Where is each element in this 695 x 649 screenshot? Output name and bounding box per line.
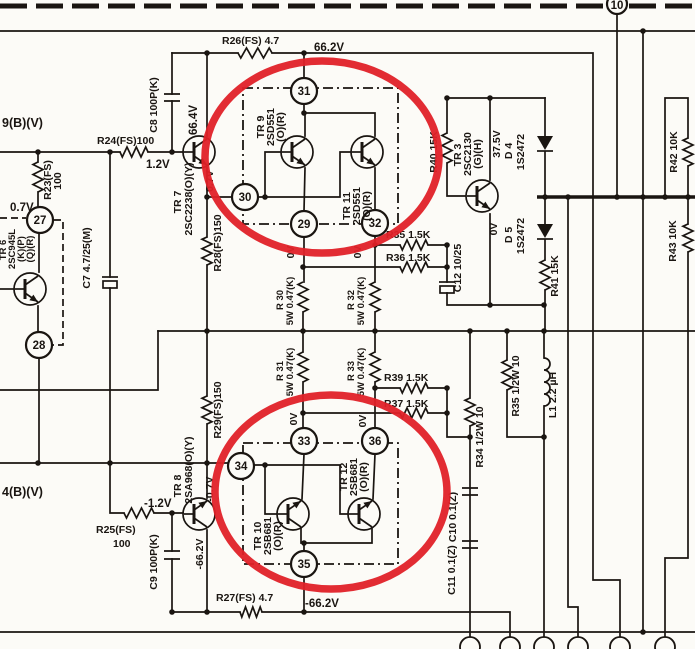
label-l1: L1 2.2 µH xyxy=(547,372,559,418)
terminal-2 xyxy=(500,637,520,649)
pin-label-34: 34 xyxy=(235,461,248,473)
diode-d5 xyxy=(537,224,553,239)
label-d4-b: 1S2472 xyxy=(515,134,527,170)
label-vm12: -1.2V xyxy=(144,498,172,510)
label-tr11-c: (O)(R) xyxy=(361,191,373,221)
label-vm662-bot: -66.2V xyxy=(305,598,339,610)
label-tr12-c: (O)(R) xyxy=(358,462,370,492)
pin-label-31: 31 xyxy=(298,86,311,98)
label-tr8-b: 2SA968(O)(Y) xyxy=(183,436,195,503)
label-r25-a: R25(FS) xyxy=(96,524,136,536)
label-d5-a: D 5 xyxy=(503,227,515,244)
label-r39: R39 1.5K xyxy=(384,372,429,384)
terminal-5 xyxy=(610,637,630,649)
label-r35b: R35 1/2W 10 xyxy=(510,355,522,416)
labels: 9(B)(V) 4(B)(V) 0.7V R24(FS)100 1.2V R26… xyxy=(0,0,680,610)
transistor-tr12 xyxy=(348,498,380,530)
pin-label-30: 30 xyxy=(239,192,252,204)
label-r36: R36 1.5K xyxy=(386,252,431,264)
label-v0-p36: 0V xyxy=(357,415,369,428)
label-r33-b: 5W 0.47(K) xyxy=(356,348,367,397)
label-v662: 66.2V xyxy=(314,42,344,54)
label-r28: R28(FS)150 xyxy=(212,214,224,271)
label-c8: C8 100P(K) xyxy=(148,77,160,132)
label-r27: R27(FS) 4.7 xyxy=(216,592,273,604)
schematic-canvas: 9(B)(V) 4(B)(V) 0.7V R24(FS)100 1.2V R26… xyxy=(0,0,695,649)
label-d4-a: D 4 xyxy=(503,143,515,160)
label-r29: R29(FS)150 xyxy=(212,381,224,438)
bottom-terminals xyxy=(460,637,675,649)
wire-segments xyxy=(0,14,695,637)
label-tr6-d: (Q)(R) xyxy=(25,236,36,263)
label-v375: 37.5V xyxy=(491,130,503,157)
pin-label-35: 35 xyxy=(298,559,311,571)
label-d5-b: 1S2472 xyxy=(515,218,527,254)
pin-label-33: 33 xyxy=(298,436,311,448)
terminal-3 xyxy=(534,637,554,649)
label-r26: R26(FS) 4.7 xyxy=(222,35,279,47)
label-v07-left: 0.7V xyxy=(10,202,34,214)
pin-label-28: 28 xyxy=(33,340,46,352)
terminal-6 xyxy=(655,637,675,649)
pin-label-36: 36 xyxy=(369,436,382,448)
schematic-page: 9(B)(V) 4(B)(V) 0.7V R24(FS)100 1.2V R26… xyxy=(0,0,695,649)
label-tr3-c: (G)(H) xyxy=(472,139,484,169)
label-r41: R41 15K xyxy=(549,255,561,297)
label-r25-b: 100 xyxy=(113,538,131,550)
transistor-tr3 xyxy=(466,180,498,212)
label-v12: 1.2V xyxy=(146,159,170,171)
label-c7: C7 4.7/25(M) xyxy=(81,227,93,288)
label-tr9-c: (O)(R) xyxy=(275,112,287,142)
label-c9: C9 100P(K) xyxy=(148,534,160,589)
diode-d4 xyxy=(537,136,553,151)
capacitor-c7 xyxy=(102,277,118,288)
transistor-tr11 xyxy=(351,136,383,168)
label-tr10-c: (O)(R) xyxy=(272,521,284,551)
label-vm662-tr8: -66.2V xyxy=(194,539,206,570)
pin-label-27: 27 xyxy=(34,215,47,227)
terminal-4 xyxy=(568,637,588,649)
label-r24: R24(FS)100 xyxy=(97,135,154,147)
pin-label-29: 29 xyxy=(298,219,311,231)
label-r23-b: 100 xyxy=(52,172,64,190)
label-r31-b: 5W 0.47(K) xyxy=(285,348,296,397)
label-r30-b: 5W 0.47(K) xyxy=(285,277,296,326)
transistor-tr6 xyxy=(14,273,46,305)
pin-label-32: 32 xyxy=(369,218,382,230)
label-v664: 66.4V xyxy=(188,105,200,135)
label-r42: R42 10K xyxy=(668,131,680,173)
label-wire-9bv: 9(B)(V) xyxy=(2,116,43,130)
label-c12: C12 10/25 xyxy=(452,244,464,293)
label-c11: C11 0.1(Z) xyxy=(446,545,458,595)
capacitor-c8 xyxy=(164,94,180,101)
label-r34: R34 1/2W 10 xyxy=(474,406,486,467)
terminal-1 xyxy=(460,637,480,649)
label-v0-p33: 0V xyxy=(288,413,300,426)
highlight-ellipse-bottom xyxy=(215,395,447,589)
capacitor-c9 xyxy=(164,551,180,559)
label-wire-4bv: 4(B)(V) xyxy=(2,485,43,499)
label-r32-b: 5W 0.47(K) xyxy=(356,277,367,326)
label-tr7-b: 2SC2238(O)(Y) xyxy=(183,163,195,236)
pin-label-10: 10 xyxy=(611,0,624,12)
label-r43: R43 10K xyxy=(667,220,679,262)
label-v0-tr3: 0V xyxy=(488,223,500,236)
